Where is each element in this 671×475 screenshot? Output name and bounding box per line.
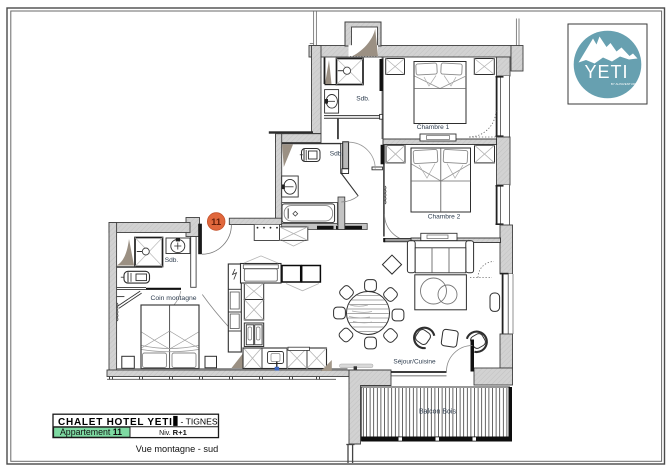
svg-text:Coin montagne: Coin montagne [150, 295, 196, 302]
svg-text:Balcon Bois: Balcon Bois [419, 409, 456, 416]
svg-text:Appartement 11: Appartement 11 [60, 427, 122, 437]
svg-text:Séjour/Cuisine: Séjour/Cuisine [393, 359, 436, 366]
svg-text:Chambre 1: Chambre 1 [417, 124, 450, 131]
svg-text:Vue montagne - sud: Vue montagne - sud [136, 444, 218, 454]
svg-text:YETI: YETI [584, 62, 628, 82]
svg-text:Sdb.: Sdb. [330, 151, 344, 158]
svg-text:BY ALPAVENTURE: BY ALPAVENTURE [611, 82, 637, 86]
svg-text:Chambre 2: Chambre 2 [428, 214, 461, 221]
svg-text:Sdb.: Sdb. [356, 96, 370, 103]
svg-text:Niv. R+1: Niv. R+1 [159, 428, 187, 437]
svg-text:11: 11 [211, 217, 222, 228]
svg-text:Sdb.: Sdb. [165, 257, 179, 264]
svg-text:- TIGNES: - TIGNES [181, 417, 218, 427]
